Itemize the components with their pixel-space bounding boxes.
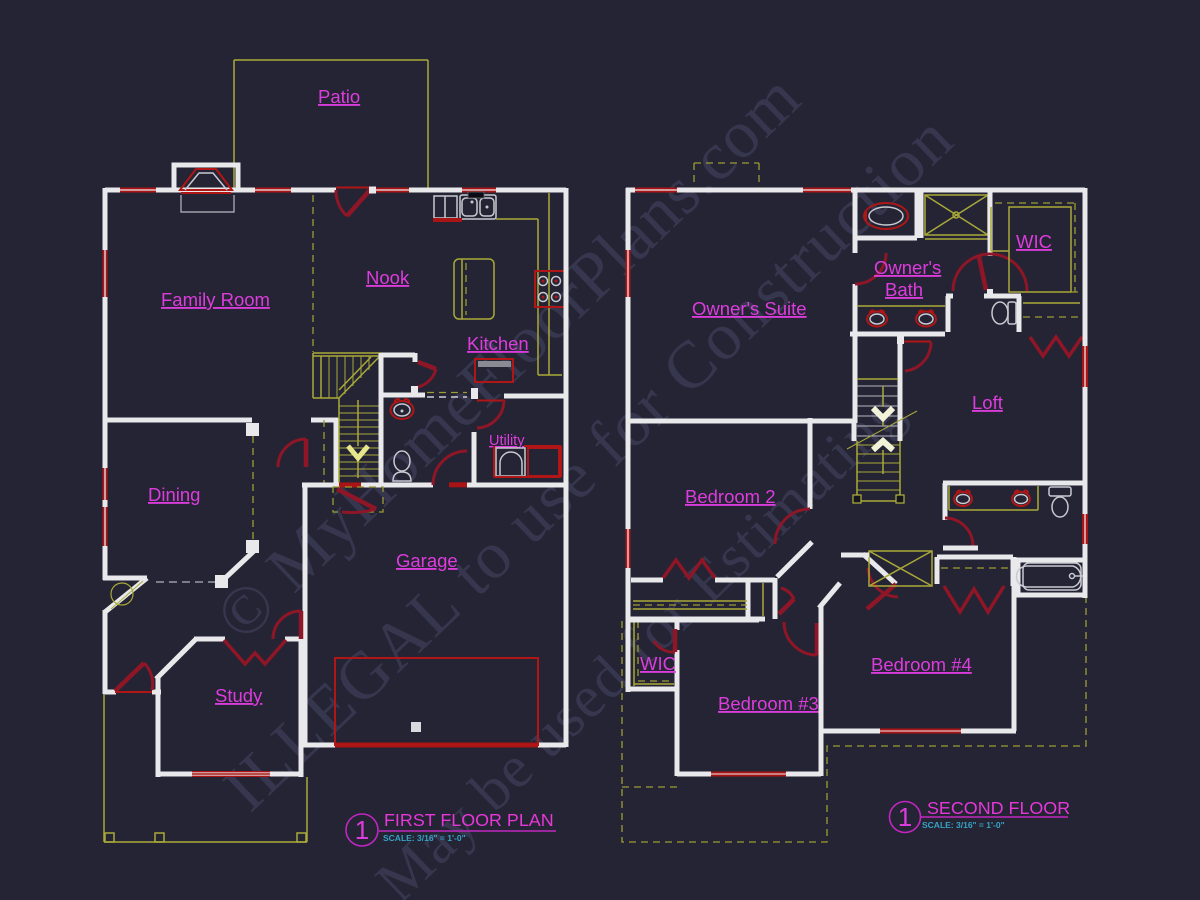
svg-text:Bedroom 2: Bedroom 2 <box>685 486 776 507</box>
svg-text:Owner's Suite: Owner's Suite <box>692 298 807 319</box>
svg-text:Loft: Loft <box>972 392 1003 413</box>
svg-text:Owner's: Owner's <box>874 257 941 278</box>
svg-text:Garage: Garage <box>396 550 458 571</box>
svg-text:Dining: Dining <box>148 484 200 505</box>
svg-text:Study: Study <box>215 685 263 706</box>
svg-text:Bath: Bath <box>885 279 923 300</box>
svg-text:Nook: Nook <box>366 267 410 288</box>
svg-text:WIC: WIC <box>1016 231 1052 252</box>
svg-text:Family Room: Family Room <box>161 289 270 310</box>
svg-text:SECOND FLOOR: SECOND FLOOR <box>927 798 1070 818</box>
svg-text:1: 1 <box>898 802 912 832</box>
svg-text:SCALE: 3/16" = 1'-0": SCALE: 3/16" = 1'-0" <box>922 820 1005 830</box>
svg-text:WIC: WIC <box>640 653 676 674</box>
svg-text:FIRST FLOOR PLAN: FIRST FLOOR PLAN <box>384 810 554 830</box>
svg-text:1: 1 <box>355 815 369 845</box>
svg-text:Bedroom #4: Bedroom #4 <box>871 654 972 675</box>
svg-text:SCALE: 3/16" = 1'-0": SCALE: 3/16" = 1'-0" <box>383 833 466 843</box>
svg-text:Bedroom #3: Bedroom #3 <box>718 693 819 714</box>
svg-text:Patio: Patio <box>318 86 360 107</box>
svg-text:Kitchen: Kitchen <box>467 333 529 354</box>
